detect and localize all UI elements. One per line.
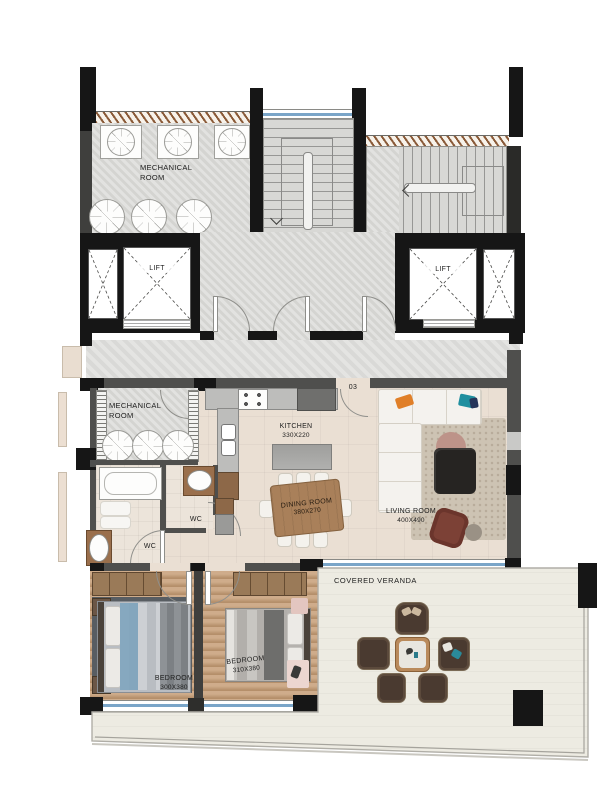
lift-x-icon: [410, 249, 476, 319]
ahu-unit-icon: [214, 125, 250, 159]
window-bedroom-right: [204, 700, 293, 712]
door-leaf: [160, 530, 165, 565]
pier-veranda-top-right: [578, 563, 597, 608]
lift-x-icon: [124, 248, 190, 319]
fan-icon: [176, 199, 212, 235]
kitchen-label: KITCHEN 330X220: [266, 422, 326, 441]
floor-plan: MECHANICAL ROOM LIFT LIFT: [0, 0, 600, 808]
bedroom-left-name: BEDROOM: [155, 675, 193, 682]
lift-shaft-left: [88, 249, 118, 319]
corridor-pier-left: [80, 330, 92, 346]
apartment-top-wall: [80, 378, 520, 388]
fan-icon: [89, 199, 125, 235]
lobby-wall-seg: [248, 331, 277, 340]
coffee-table: [434, 448, 476, 494]
stair-handrail: [303, 152, 313, 230]
pier-top-left: [80, 67, 96, 131]
window-glass: [204, 704, 293, 707]
outdoor-table: [395, 637, 430, 672]
veranda-label: COVERED VERANDA: [334, 576, 454, 586]
tall-cabinet: [215, 498, 234, 515]
outdoor-chair: [418, 673, 448, 703]
mech-room-upper-line1: MECHANICAL: [140, 163, 192, 172]
bathtub-icon: [99, 467, 162, 500]
window-glass: [323, 563, 505, 566]
table-decor: [414, 652, 418, 658]
side-table: [465, 524, 482, 541]
dining-table: DINING ROOM 380X270: [269, 478, 344, 537]
mech-room-upper-label: MECHANICAL ROOM: [140, 163, 232, 183]
ledge: [58, 392, 67, 447]
wc-guest-label: WC: [184, 515, 208, 524]
fan-icon: [102, 430, 134, 462]
kitchen-island: [272, 444, 332, 470]
mech-room-lower-line1: MECHANICAL: [109, 401, 161, 410]
door-leaf: [213, 296, 218, 332]
dining-chair: [313, 531, 328, 548]
bathtub-basin: [104, 472, 157, 495]
lift-right-label: LIFT: [410, 265, 476, 274]
sink-icon: [89, 534, 109, 562]
bedroom-door-gap: [150, 563, 190, 571]
mech-room-upper-line2: ROOM: [140, 173, 165, 182]
utility-unit: [215, 514, 234, 535]
fan-icon: [131, 199, 167, 235]
wardrobe: [233, 572, 307, 596]
pillow: [287, 613, 303, 645]
headboard: [98, 602, 104, 692]
bedroom-right-dims: 310X380: [232, 665, 260, 675]
wall-block: [505, 465, 521, 495]
door-leaf: [205, 571, 211, 605]
bedroom-left-dims: 300X380: [160, 684, 187, 691]
dining-room-dims: 380X270: [293, 507, 321, 518]
pantry-cabinet: [217, 472, 239, 500]
pier-stair-right: [352, 88, 366, 232]
bath-mat: [100, 516, 131, 529]
lift-right: LIFT: [409, 248, 477, 320]
bath-mat: [100, 501, 131, 516]
window-glass: [263, 113, 352, 116]
stair-landing: [367, 147, 399, 233]
apartment-right-wall: [507, 350, 521, 568]
pillow: [105, 606, 121, 646]
living-room-name: LIVING ROOM: [386, 508, 436, 515]
mech-room-lower-line2: ROOM: [109, 411, 134, 420]
fan-icon: [132, 430, 164, 462]
mech-room-lower-label: MECHANICAL ROOM: [109, 401, 189, 421]
bedside-mat: [291, 598, 308, 614]
fridge-unit: [297, 388, 336, 411]
living-room-label: LIVING ROOM 400X490: [382, 507, 440, 526]
table-top: [399, 641, 426, 668]
throw-blanket: [120, 603, 138, 690]
lift-left-label: LIFT: [124, 264, 190, 273]
sofa: [378, 423, 422, 513]
kitchen-dims: 330X220: [282, 432, 309, 439]
pier-bottom-mid: [188, 698, 204, 712]
living-room-dims: 400X490: [397, 517, 424, 524]
lobby-wall-seg: [200, 331, 214, 340]
pillow: [105, 648, 121, 688]
unit-number-label: 03: [344, 383, 362, 392]
kitchen-name: KITCHEN: [280, 423, 313, 430]
lift-door-sill: [423, 319, 475, 328]
wall-niche: [507, 432, 521, 450]
outdoor-chair: [357, 637, 390, 670]
ahu-unit-icon: [100, 125, 142, 159]
pier-top-right: [509, 67, 523, 137]
wall-stair-right-edge: [507, 146, 521, 235]
lobby-wall-seg: [310, 331, 363, 340]
wall: [166, 528, 206, 533]
lift-left: LIFT: [123, 247, 191, 320]
door-leaf: [305, 296, 310, 332]
outdoor-chair: [377, 673, 406, 703]
stair-handrail: [404, 183, 476, 193]
shaft-x-icon: [484, 250, 514, 318]
lift-shaft-right: [483, 249, 515, 319]
pier-veranda-bottom: [513, 690, 543, 726]
wardrobe: [92, 572, 162, 596]
stove-icon: [238, 389, 268, 410]
lift-door-sill: [123, 319, 191, 329]
sink-icon: [187, 470, 212, 491]
pillow-navy: [469, 397, 479, 408]
kitchen-sink-icon: [221, 424, 236, 440]
bedroom-door-gap: [205, 563, 245, 571]
door-leaf: [362, 296, 367, 332]
bedroom-left-label: BEDROOM 300X380: [138, 674, 210, 693]
shaft-x-icon: [89, 250, 117, 318]
kitchen-sink-icon: [221, 440, 236, 456]
pier-stair-left: [250, 88, 263, 232]
window-bedroom-left: [103, 700, 188, 712]
corridor-pier-right: [509, 330, 523, 344]
ledge: [58, 472, 67, 562]
fan-icon: [162, 430, 194, 462]
window-glass: [103, 704, 188, 707]
corridor: [86, 340, 520, 378]
ahu-unit-icon: [157, 125, 199, 159]
ledge: [62, 346, 82, 378]
door-leaf: [186, 571, 192, 605]
outdoor-chair: [395, 602, 429, 635]
